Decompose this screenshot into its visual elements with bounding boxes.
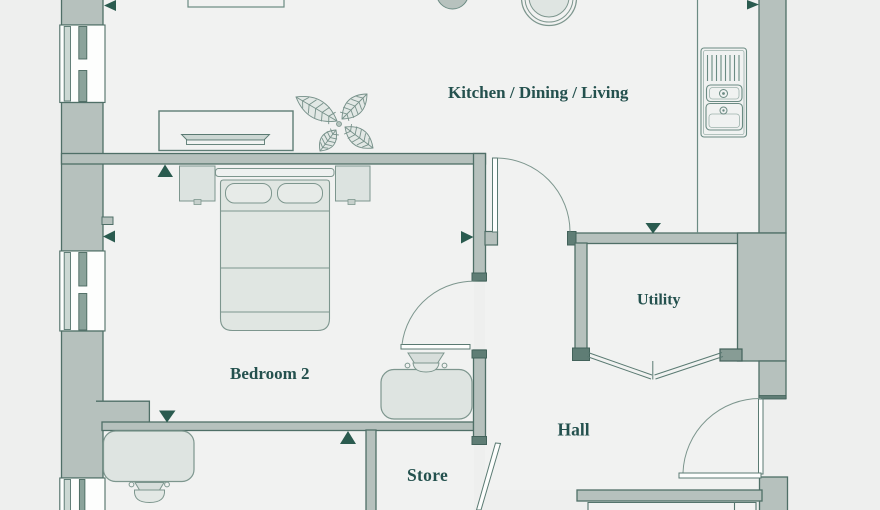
svg-text:Kitchen / Dining / Living: Kitchen / Dining / Living [448, 83, 629, 102]
svg-text:Utility: Utility [637, 292, 681, 309]
svg-text:Bedroom 2: Bedroom 2 [230, 364, 310, 383]
svg-text:Store: Store [407, 465, 448, 485]
svg-text:Hall: Hall [558, 420, 590, 440]
